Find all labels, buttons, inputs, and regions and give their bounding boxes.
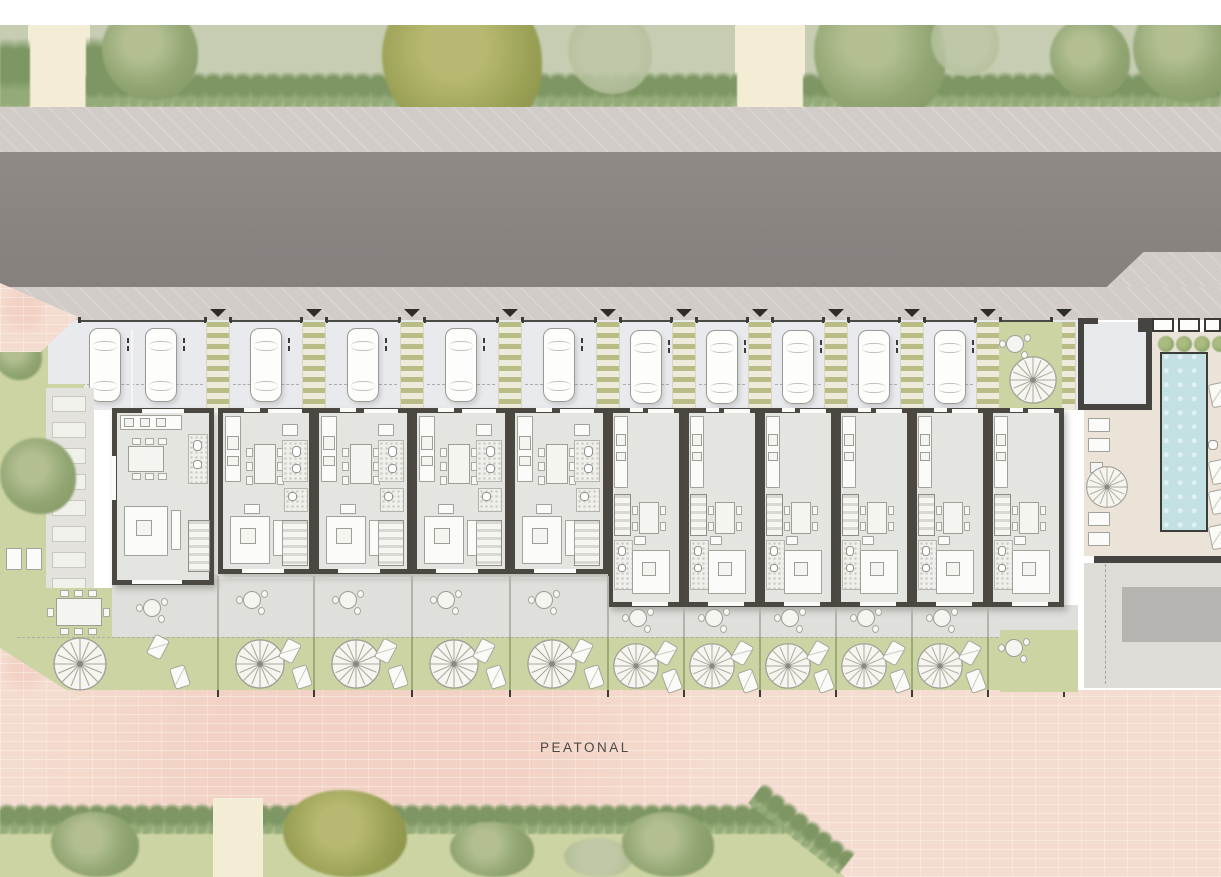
door-opening <box>782 408 795 412</box>
door-opening <box>934 408 947 412</box>
dining-chair <box>246 476 253 485</box>
dining-chair <box>440 476 447 485</box>
bay-mark <box>820 348 822 353</box>
window-opening <box>876 409 902 413</box>
car-icon <box>347 328 379 402</box>
property-line <box>521 320 597 322</box>
car-icon <box>782 330 814 404</box>
bistro-chair <box>430 596 437 604</box>
bistro-table-icon <box>437 591 455 609</box>
bistro-table-icon <box>705 609 723 627</box>
garden-post <box>313 690 315 697</box>
side-table <box>786 536 798 545</box>
dining-chair <box>158 473 167 480</box>
side-table <box>244 504 260 514</box>
toilet-icon <box>193 440 202 451</box>
garden-post <box>411 690 413 697</box>
dining-chair <box>88 628 97 635</box>
window-opening <box>1012 602 1048 606</box>
terrace-divider <box>683 607 685 637</box>
entry-arrow-icon <box>1056 309 1072 317</box>
bistro-chair <box>850 614 857 622</box>
door-opening <box>858 408 871 412</box>
bathroom <box>284 488 308 512</box>
washbasin-icon <box>584 464 593 473</box>
bistro-chair <box>774 614 781 622</box>
sun-lounger-icon <box>1088 438 1110 452</box>
property-line <box>78 320 207 322</box>
bistro-chair <box>354 607 361 615</box>
kitchen-sink <box>616 452 626 461</box>
bistro-chair <box>258 607 265 615</box>
terrace-divider <box>835 607 837 637</box>
shrub-icon <box>1176 336 1192 352</box>
bistro-table-icon <box>339 591 357 609</box>
dining-table <box>350 444 372 484</box>
window-glazing <box>1152 318 1174 332</box>
bistro-chair <box>161 598 168 606</box>
washbasin-icon <box>388 464 397 473</box>
door-opening <box>244 408 260 412</box>
coffee-table <box>336 528 352 544</box>
entry-arrow-icon <box>904 309 920 317</box>
kitchen-appliance <box>156 418 166 427</box>
side-table <box>710 536 722 545</box>
dining-chair <box>632 506 638 515</box>
window-opening <box>724 409 750 413</box>
bistro-table-icon <box>629 609 647 627</box>
swimming-pool <box>1160 352 1208 532</box>
bistro-table-icon <box>781 609 799 627</box>
window-opening <box>132 580 182 584</box>
laundry-unit <box>476 424 492 436</box>
kitchen-sink <box>227 456 239 466</box>
parasol-icon <box>526 638 578 690</box>
garden-hedge-divider <box>313 637 315 694</box>
window-glazing <box>1178 318 1200 332</box>
car-icon <box>706 330 738 404</box>
bistro-chair <box>528 596 535 604</box>
property-line <box>695 320 749 322</box>
window-opening <box>936 602 972 606</box>
bay-mark <box>744 348 746 353</box>
kitchen-hob <box>844 434 854 446</box>
coffee-table <box>794 562 808 576</box>
window-opening <box>142 409 184 413</box>
washbasin-icon <box>618 564 626 572</box>
bistro-chair <box>698 614 705 622</box>
stepping-stone <box>52 422 86 438</box>
car-icon <box>543 328 575 402</box>
dining-chair <box>660 522 666 531</box>
tree-icon <box>450 822 534 877</box>
garden-post <box>987 690 989 697</box>
property-post <box>78 317 81 323</box>
door-opening <box>1010 408 1023 412</box>
tree-icon <box>622 812 714 877</box>
dining-chair <box>342 448 349 457</box>
dining-chair <box>145 438 154 445</box>
bistro-table-icon <box>535 591 553 609</box>
bay-mark <box>581 338 583 343</box>
side-table <box>634 536 646 545</box>
staircase <box>994 494 1011 536</box>
dining-chair <box>74 628 83 635</box>
window-opening <box>364 409 398 413</box>
staircase <box>766 494 783 536</box>
window-opening <box>648 409 674 413</box>
window-opening <box>800 409 826 413</box>
washbasin-icon <box>922 564 930 572</box>
toilet-icon <box>388 446 397 457</box>
dining-chair <box>60 590 69 597</box>
dining-chair <box>860 506 866 515</box>
sidewalk-top <box>0 107 1221 152</box>
garage-wall <box>1084 318 1098 324</box>
dining-chair <box>660 506 666 515</box>
terrace-divider <box>313 576 315 637</box>
staircase <box>842 494 859 536</box>
car-icon <box>934 330 966 404</box>
dining-chair <box>538 448 545 457</box>
bistro-chair <box>948 625 955 633</box>
toilet-icon <box>846 546 854 556</box>
entry-walkway <box>400 322 424 410</box>
armchair <box>171 510 181 550</box>
dining-chair <box>158 438 167 445</box>
kitchen-sink <box>692 452 702 461</box>
coffee-table <box>434 528 450 544</box>
terrace-divider <box>759 607 761 637</box>
staircase <box>918 494 935 536</box>
parasol-icon <box>428 638 480 690</box>
kitchen-hob <box>227 436 239 450</box>
parasol-icon <box>612 642 660 690</box>
kitchen-hob <box>616 434 626 446</box>
property-line <box>619 320 673 322</box>
parasol-icon <box>764 642 812 690</box>
car-icon <box>250 328 282 402</box>
staircase <box>574 520 600 566</box>
side-table <box>438 504 454 514</box>
property-line <box>229 320 303 322</box>
dining-chair <box>88 590 97 597</box>
kitchen-hob <box>996 434 1006 446</box>
kitchen-sink <box>421 456 433 466</box>
bay-mark <box>127 346 129 351</box>
terrace-divider <box>509 576 511 637</box>
door-opening <box>438 408 454 412</box>
bistro-chair <box>926 614 933 622</box>
dining-table <box>943 502 963 534</box>
terrace-divider <box>911 607 913 637</box>
coffee-table <box>1022 562 1036 576</box>
bistro-chair <box>998 644 1005 652</box>
bistro-chair <box>332 596 339 604</box>
bistro-chair <box>796 625 803 633</box>
bistro-chair <box>872 625 879 633</box>
park-path <box>28 25 90 107</box>
dining-chair <box>538 462 545 471</box>
road <box>0 152 1221 290</box>
kitchen-hob <box>768 434 778 446</box>
window-opening <box>784 602 820 606</box>
bistro-chair <box>136 604 143 612</box>
garden-hedge-divider <box>217 637 219 694</box>
kitchen-sink <box>519 456 531 466</box>
parasol-icon <box>234 638 286 690</box>
dining-table <box>791 502 811 534</box>
bay-mark <box>896 348 898 353</box>
dining-chair <box>736 506 742 515</box>
bistro-chair <box>799 608 806 616</box>
entry-arrow-icon <box>306 309 322 317</box>
laundry-unit <box>574 424 590 436</box>
parasol-icon <box>688 642 736 690</box>
dining-table <box>1019 502 1039 534</box>
dining-chair <box>1012 506 1018 515</box>
bathroom <box>478 488 502 512</box>
garden-table-icon <box>1006 335 1024 353</box>
bay-mark <box>896 340 898 345</box>
dining-chair <box>342 462 349 471</box>
entry-walkway <box>900 322 924 410</box>
kitchen-sink <box>920 452 930 461</box>
shrub-icon <box>1194 336 1210 352</box>
hedge-row <box>0 30 30 107</box>
garden-post <box>683 690 685 697</box>
shrub-icon <box>1212 336 1221 352</box>
garden-hedge-divider <box>835 637 837 694</box>
bistro-chair <box>452 607 459 615</box>
bay-mark <box>820 340 822 345</box>
kitchen-hob <box>421 436 433 450</box>
dining-chair <box>145 473 154 480</box>
car-icon <box>630 330 662 404</box>
bay-mark <box>385 338 387 343</box>
property-line <box>325 320 401 322</box>
toilet-icon <box>770 546 778 556</box>
parasol-icon <box>330 638 382 690</box>
entry-arrow-icon <box>600 309 616 317</box>
shower-icon <box>580 492 589 501</box>
window-opening <box>534 569 576 573</box>
entry-arrow-icon <box>676 309 692 317</box>
entry-arrow-icon <box>980 309 996 317</box>
dining-chair <box>74 590 83 597</box>
parasol-icon <box>52 636 108 692</box>
washbasin-icon <box>486 464 495 473</box>
car-icon <box>445 328 477 402</box>
compound-wall-south <box>1094 556 1221 563</box>
dining-chair <box>708 506 714 515</box>
side-table <box>1014 536 1026 545</box>
dining-chair <box>888 522 894 531</box>
dining-table <box>128 446 164 472</box>
top-margin <box>0 0 1221 25</box>
bay-mark <box>972 340 974 345</box>
garden-post <box>835 690 837 697</box>
bay-mark <box>183 338 185 343</box>
washbasin-icon <box>846 564 854 572</box>
dining-chair <box>132 438 141 445</box>
kitchen-hob <box>323 436 335 450</box>
bistro-chair <box>723 608 730 616</box>
kitchen-sink <box>768 452 778 461</box>
staircase <box>614 494 631 536</box>
sun-lounger-icon <box>1088 512 1110 526</box>
dining-chair <box>936 522 942 531</box>
bay-mark <box>668 348 670 353</box>
garden-hedge-divider <box>683 637 685 694</box>
bistro-table-icon <box>143 599 161 617</box>
side-table <box>536 504 552 514</box>
bistro-chair <box>644 625 651 633</box>
bay-mark <box>744 340 746 345</box>
garden-hedge-divider <box>607 637 609 694</box>
armchair <box>273 520 283 556</box>
garden-hedge-divider <box>759 637 761 694</box>
tree-icon <box>0 438 76 514</box>
stepping-stone <box>52 396 86 412</box>
kitchen-hob <box>519 436 531 450</box>
bottom-path <box>213 798 263 877</box>
garden-post <box>607 690 609 697</box>
bistro-chair <box>1023 638 1030 646</box>
lounger-icon <box>6 548 22 570</box>
dining-chair <box>60 628 69 635</box>
parking-divider <box>131 330 133 408</box>
bistro-chair <box>158 615 165 623</box>
tree-icon <box>51 812 139 877</box>
dining-chair <box>132 473 141 480</box>
bay-mark <box>581 346 583 351</box>
window-opening <box>708 602 744 606</box>
bay-mark <box>483 346 485 351</box>
laundry-unit <box>378 424 394 436</box>
bistro-chair <box>261 590 268 598</box>
kitchen-appliance <box>140 418 150 427</box>
toilet-icon <box>486 446 495 457</box>
dining-chair <box>1012 522 1018 531</box>
boundary-dashed <box>1105 564 1106 684</box>
entry-walkway <box>976 322 1000 410</box>
driveway-pad <box>1122 587 1221 642</box>
tree-icon <box>1050 18 1130 98</box>
kitchen-appliance <box>124 418 134 427</box>
bistro-table-icon <box>933 609 951 627</box>
laundry-unit <box>282 424 298 436</box>
garden-hedge-divider <box>509 637 511 694</box>
outdoor-dining-table <box>56 598 102 626</box>
kitchen-sink <box>844 452 854 461</box>
dining-chair <box>1040 522 1046 531</box>
shower-icon <box>384 492 393 501</box>
bay-mark <box>972 348 974 353</box>
bistro-chair <box>357 590 364 598</box>
staircase <box>690 494 707 536</box>
door-opening <box>630 408 643 412</box>
dining-chair <box>708 522 714 531</box>
coffee-table <box>946 562 960 576</box>
dining-table <box>546 444 568 484</box>
garden-hedge-divider <box>411 637 413 694</box>
kitchen-sink <box>323 456 335 466</box>
lounger-icon <box>26 548 42 570</box>
staircase <box>282 520 308 566</box>
window-opening <box>242 569 284 573</box>
bistro-table-icon <box>243 591 261 609</box>
staircase <box>188 520 210 572</box>
dining-chair <box>103 608 110 617</box>
toilet-icon <box>292 446 301 457</box>
dining-chair <box>440 448 447 457</box>
terrace-divider <box>411 576 413 637</box>
pool-side-table <box>1208 440 1218 450</box>
bistro-table-icon <box>857 609 875 627</box>
armchair <box>565 520 575 556</box>
coffee-table <box>718 562 732 576</box>
parasol-icon <box>840 642 888 690</box>
bistro-chair <box>236 596 243 604</box>
window-opening <box>1028 409 1054 413</box>
coffee-table <box>532 528 548 544</box>
entry-walkway <box>824 322 848 410</box>
coffee-table <box>240 528 256 544</box>
terrace-divider <box>607 576 609 637</box>
dining-chair <box>888 506 894 515</box>
bay-mark <box>483 338 485 343</box>
dining-chair <box>812 506 818 515</box>
terrace-divider <box>217 576 219 637</box>
toilet-icon <box>694 546 702 556</box>
window-opening <box>268 409 302 413</box>
staircase <box>476 520 502 566</box>
kitchen-hob <box>692 434 702 446</box>
terrace-divider <box>987 607 989 637</box>
entry-arrow-icon <box>502 309 518 317</box>
garden-post <box>217 690 219 697</box>
shower-icon <box>482 492 491 501</box>
washbasin-icon <box>292 464 301 473</box>
dining-chair <box>784 522 790 531</box>
bathroom <box>380 488 404 512</box>
dining-table <box>254 444 276 484</box>
bay-mark <box>288 346 290 351</box>
dining-chair <box>47 608 54 617</box>
entry-walkway <box>206 322 230 410</box>
property-line <box>771 320 825 322</box>
entry-walkway <box>672 322 696 410</box>
bistro-chair <box>553 590 560 598</box>
bistro-chair <box>1020 655 1027 663</box>
dining-chair <box>812 522 818 531</box>
garage-wall <box>1078 404 1152 410</box>
window-opening <box>632 602 668 606</box>
bay-mark <box>385 346 387 351</box>
staircase <box>378 520 404 566</box>
parasol-icon <box>916 642 964 690</box>
kitchen-sink <box>996 452 1006 461</box>
garden-hedge-divider <box>911 637 913 694</box>
dining-chair <box>342 476 349 485</box>
dining-chair <box>440 462 447 471</box>
toilet-icon <box>618 546 626 556</box>
garage-floor <box>1084 322 1152 406</box>
armchair <box>369 520 379 556</box>
bistro-chair <box>951 608 958 616</box>
washbasin-icon <box>998 564 1006 572</box>
